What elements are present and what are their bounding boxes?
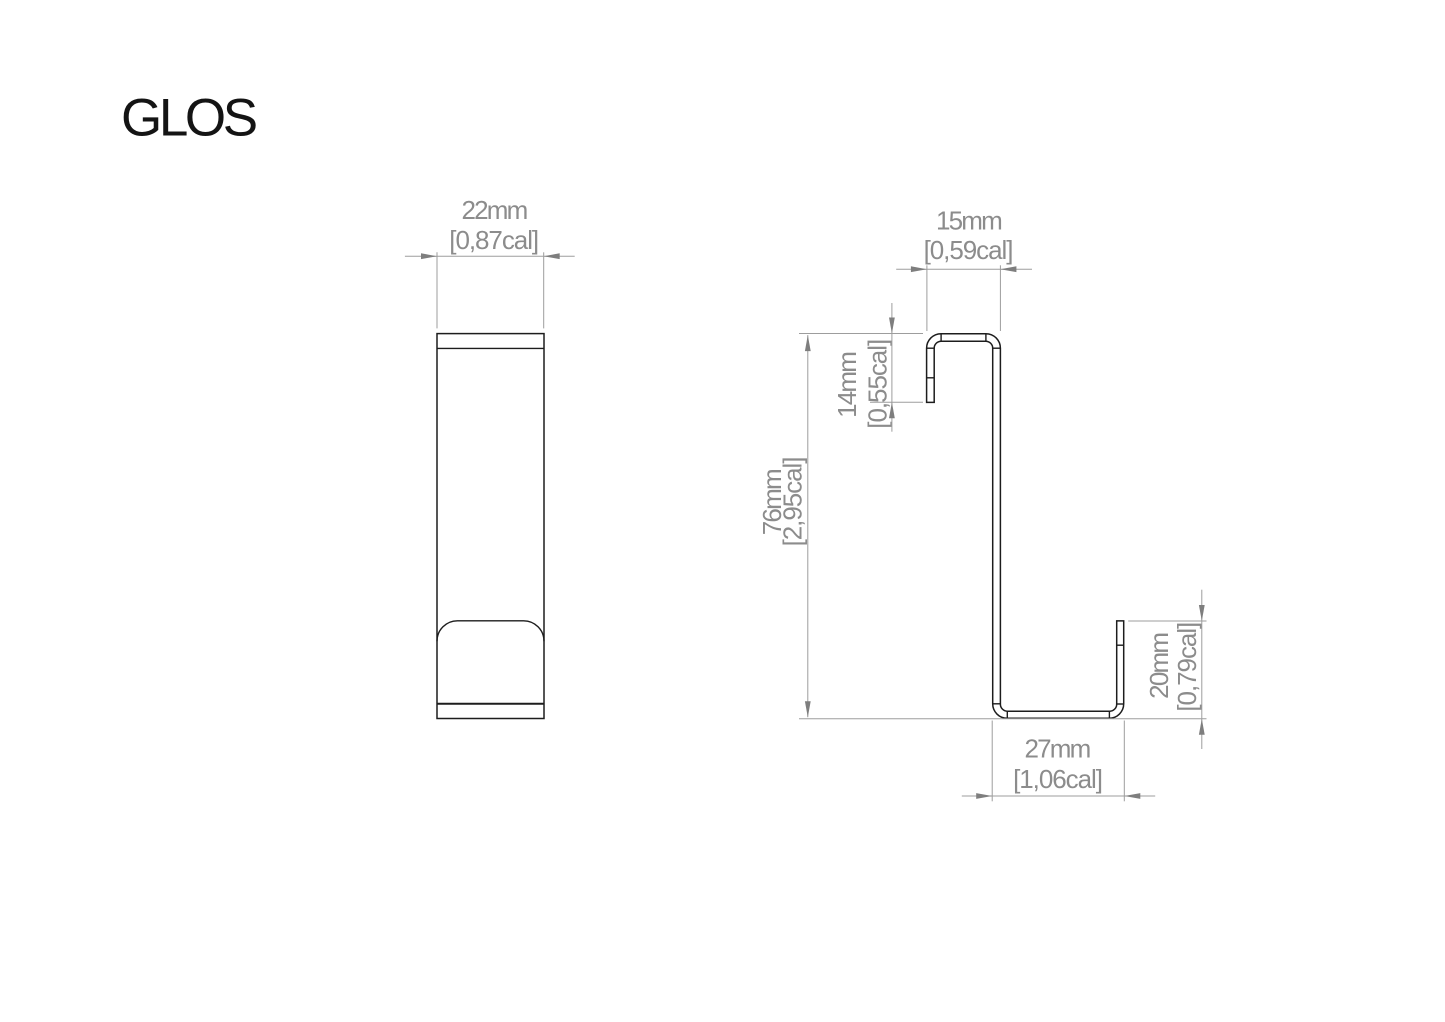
svg-text:[0,79cal]: [0,79cal] (1172, 623, 1202, 712)
svg-text:[2,95cal]: [2,95cal] (778, 458, 808, 547)
svg-text:22mm: 22mm (461, 195, 526, 225)
svg-text:15mm: 15mm (936, 206, 1001, 236)
svg-text:[1,06cal]: [1,06cal] (1013, 764, 1102, 794)
svg-text:[0,87cal]: [0,87cal] (449, 225, 538, 255)
svg-text:GLOS: GLOS (121, 89, 256, 148)
svg-text:[0,55cal]: [0,55cal] (863, 340, 893, 429)
svg-text:27mm: 27mm (1024, 734, 1089, 764)
svg-text:14mm: 14mm (832, 353, 862, 418)
svg-text:[0,59cal]: [0,59cal] (924, 235, 1013, 265)
svg-text:20mm: 20mm (1144, 634, 1174, 699)
